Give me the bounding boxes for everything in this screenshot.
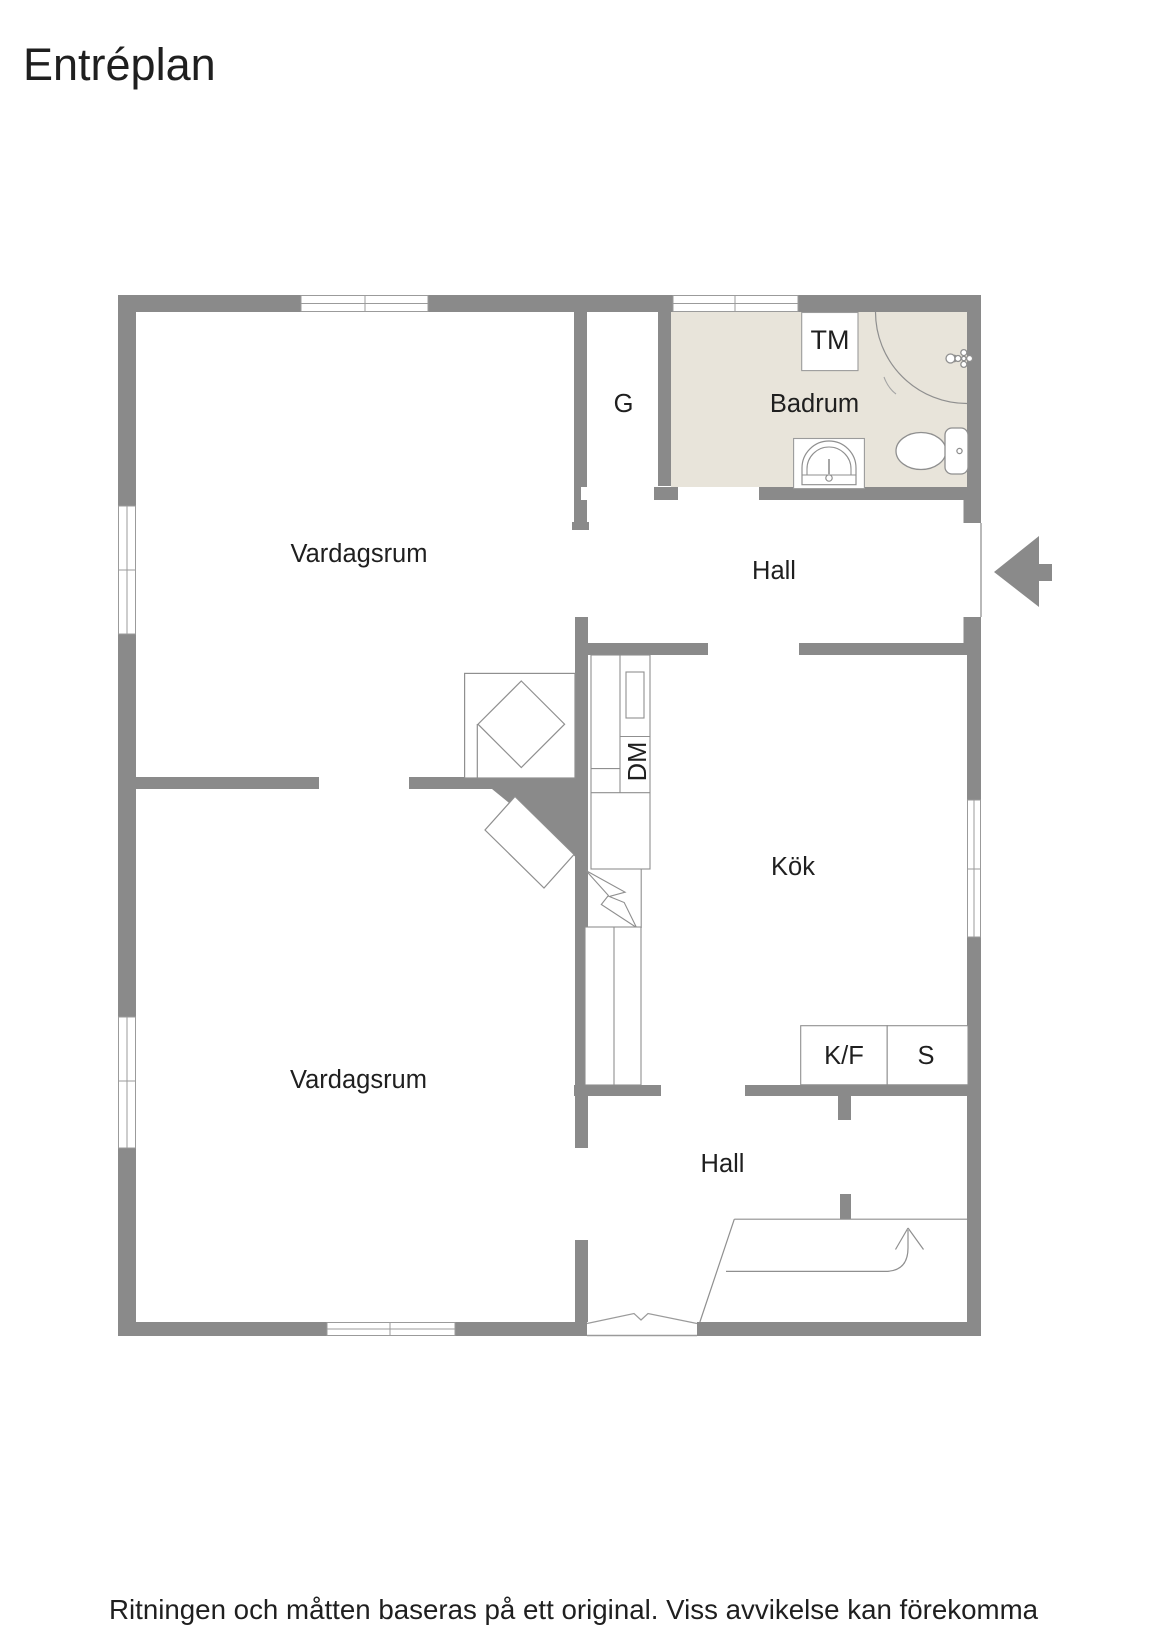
svg-text:DM: DM [624,742,652,782]
svg-text:Hall: Hall [752,557,796,585]
svg-text:S: S [917,1042,934,1070]
svg-text:Kök: Kök [771,853,815,881]
svg-text:Hall: Hall [701,1150,745,1178]
svg-text:Ritningen och måtten baseras p: Ritningen och måtten baseras på ett orig… [109,1594,1039,1625]
svg-text:Vardagsrum: Vardagsrum [290,1066,427,1094]
svg-text:Badrum: Badrum [770,390,859,418]
svg-text:G: G [614,390,634,418]
svg-text:Vardagsrum: Vardagsrum [290,540,427,568]
svg-text:Entréplan: Entréplan [23,39,216,90]
svg-text:TM: TM [811,325,850,355]
svg-text:K/F: K/F [824,1042,864,1070]
